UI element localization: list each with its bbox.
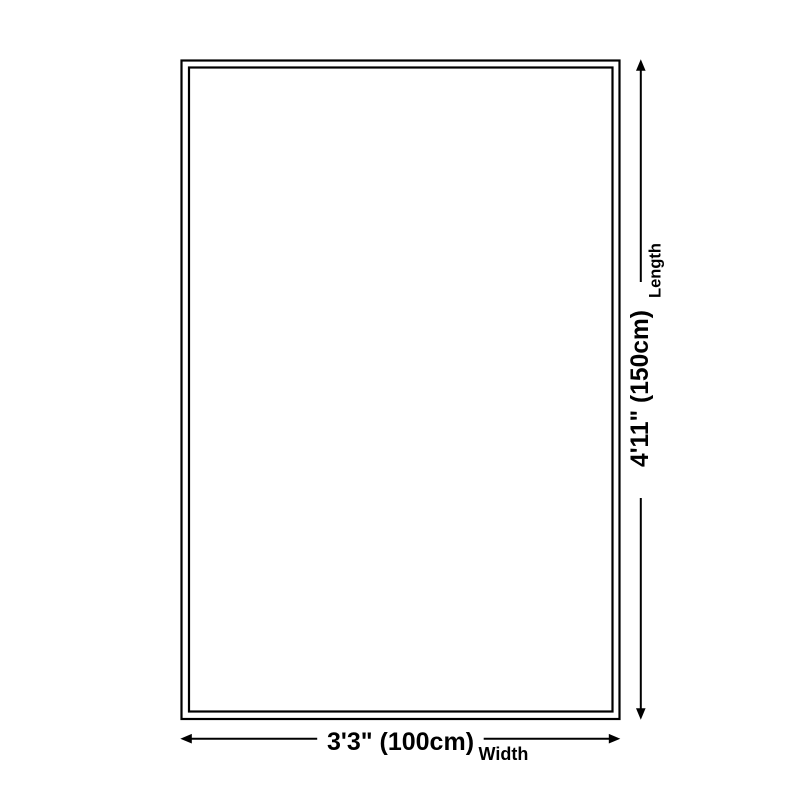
svg-text:Width: Width [479,744,529,764]
svg-text:4'11" (150cm): 4'11" (150cm) [627,310,654,467]
svg-text:Length: Length [647,243,665,298]
svg-text:3'3" (100cm): 3'3" (100cm) [327,728,474,756]
